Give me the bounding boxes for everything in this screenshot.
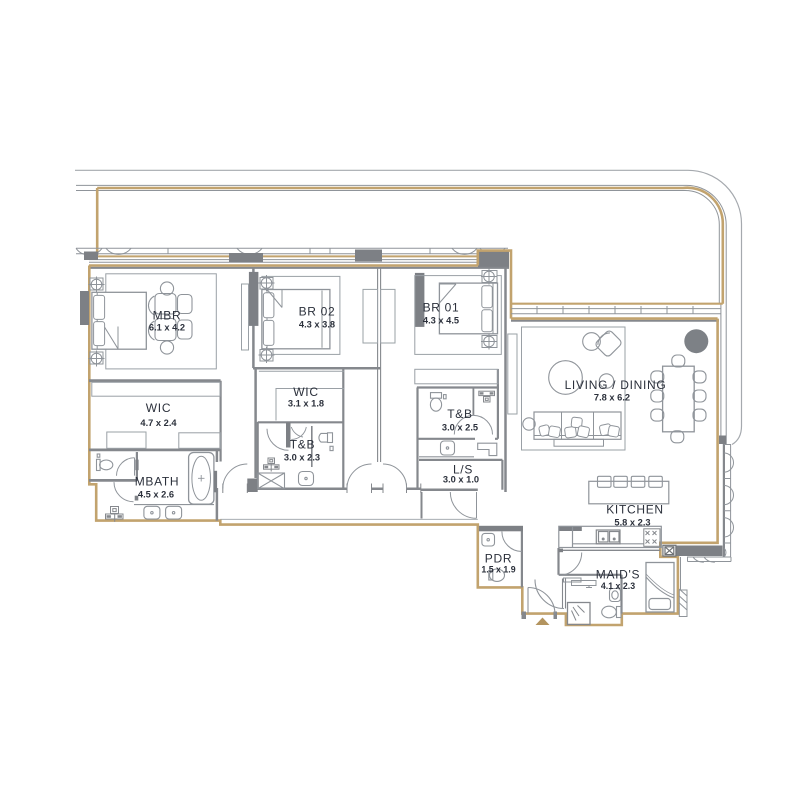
svg-text:5.8 x 2.3: 5.8 x 2.3 xyxy=(614,518,650,528)
svg-text:7.8 x 6.2: 7.8 x 6.2 xyxy=(594,393,630,403)
svg-text:MBR: MBR xyxy=(153,309,182,323)
svg-text:3.0 x 2.5: 3.0 x 2.5 xyxy=(442,423,478,433)
svg-text:T&B: T&B xyxy=(290,438,315,452)
svg-text:4.5 x 2.6: 4.5 x 2.6 xyxy=(138,490,174,500)
svg-text:LIVING / DINING: LIVING / DINING xyxy=(565,378,667,392)
svg-text:4.7 x 2.4: 4.7 x 2.4 xyxy=(140,418,177,428)
svg-text:3.1 x 1.8: 3.1 x 1.8 xyxy=(288,399,324,409)
svg-text:MBATH: MBATH xyxy=(135,475,180,489)
svg-text:3.0 x 1.0: 3.0 x 1.0 xyxy=(443,475,479,485)
svg-text:WIC: WIC xyxy=(146,401,171,415)
svg-text:BR 01: BR 01 xyxy=(423,301,460,315)
svg-text:PDR: PDR xyxy=(485,552,512,566)
svg-text:4.3 x 4.5: 4.3 x 4.5 xyxy=(423,316,459,326)
svg-text:T&B: T&B xyxy=(447,407,472,421)
svg-text:WIC: WIC xyxy=(293,385,318,399)
svg-text:BR 02: BR 02 xyxy=(299,305,336,319)
svg-text:6.1 x 4.2: 6.1 x 4.2 xyxy=(149,323,185,333)
svg-text:KITCHEN: KITCHEN xyxy=(606,503,664,517)
svg-text:3.0 x 2.3: 3.0 x 2.3 xyxy=(284,453,320,463)
svg-text:1.5 x 1.9: 1.5 x 1.9 xyxy=(481,565,515,575)
svg-text:4.1 x 2.3: 4.1 x 2.3 xyxy=(601,581,635,591)
svg-text:4.3 x 3.8: 4.3 x 3.8 xyxy=(299,320,335,330)
svg-text:MAID'S: MAID'S xyxy=(596,568,641,582)
